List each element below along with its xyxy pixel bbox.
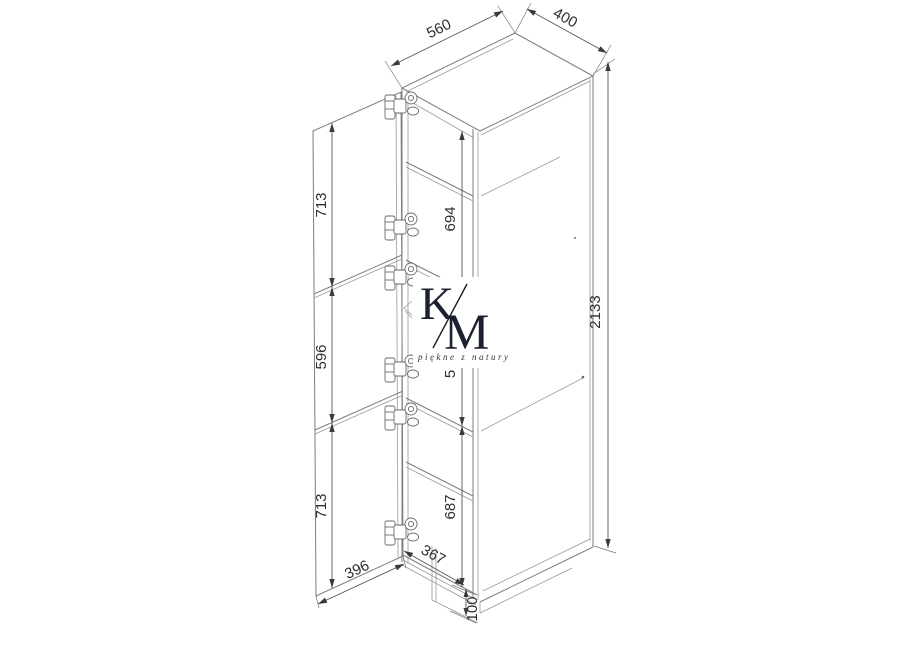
- dim-plinth-height: 100: [464, 596, 481, 621]
- dim-interior-width: 367: [418, 542, 448, 569]
- dim-door-middle: 596: [313, 344, 330, 369]
- dim-top-depth: 560: [424, 16, 454, 42]
- dim-interior-bottom: 687: [442, 494, 459, 519]
- open-door-panel: [313, 92, 403, 596]
- dimension-top-depth: 560: [385, 6, 515, 88]
- technical-drawing-canvas: 713 596 713 694 5 687 2133 560: [0, 0, 919, 650]
- stray-dot: [574, 237, 576, 239]
- dimension-door-heights: 713 596 713: [313, 123, 335, 588]
- dimension-total-height: 2133: [587, 59, 616, 553]
- dim-total-height: 2133: [587, 295, 604, 328]
- dim-interior-top: 694: [442, 206, 459, 231]
- dim-top-width: 400: [550, 5, 580, 32]
- dimension-door-width: 396: [316, 556, 406, 608]
- shelf-line-end-dot: [582, 376, 585, 379]
- dim-interior-middle-partial: 5: [442, 370, 459, 378]
- dimension-plinth-height: 100: [450, 585, 481, 623]
- watermark: K M piękne z natury: [413, 277, 588, 368]
- dim-door-width: 396: [342, 557, 372, 583]
- dimension-top-width: 400: [515, 3, 611, 76]
- watermark-tagline: piękne z natury: [417, 352, 510, 362]
- cabinet-diagram: 713 596 713 694 5 687 2133 560: [0, 0, 919, 650]
- dim-door-top: 713: [313, 192, 330, 217]
- dim-door-bottom: 713: [313, 493, 330, 518]
